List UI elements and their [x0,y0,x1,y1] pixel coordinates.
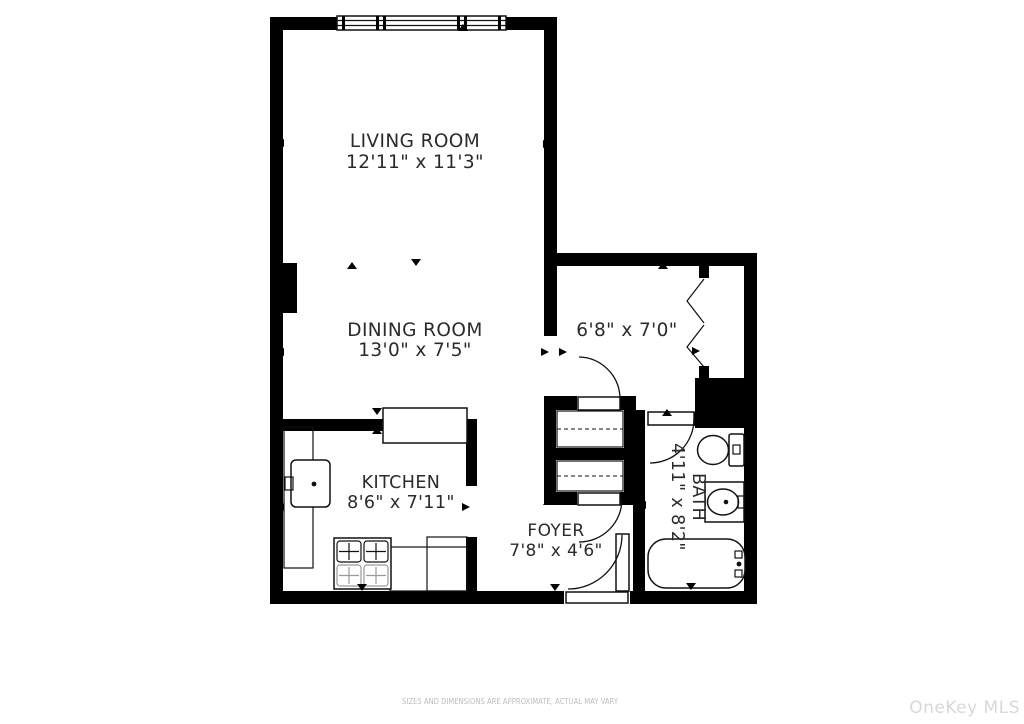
bifold-closet-door-icon [687,279,704,367]
dining-room-dimensions: 13'0" x 7'5" [358,340,472,361]
dimension-marker [692,347,700,355]
foyer-label: FOYER [527,521,584,541]
wall [699,366,709,380]
dining-room-label: DINING ROOM [347,320,482,341]
bath-dimensions: 4'11" x 8'2" [667,443,687,551]
dimension-marker [541,348,549,356]
wall [556,396,577,410]
toilet-icon [698,434,745,466]
dimension-marker [411,259,421,266]
dimension-marker [462,503,470,511]
wall [466,537,477,591]
window-icon [337,16,506,30]
wall [620,396,636,410]
wall [545,253,757,266]
wall [544,396,556,505]
wall [744,253,757,604]
kitchen-dimensions: 8'6" x 7'11" [347,493,455,513]
watermark: OneKey MLS [909,698,1020,718]
wall [544,17,557,336]
dimension-marker [559,348,567,356]
wall [283,263,297,313]
wall [270,17,283,604]
room-labels: LIVING ROOM 12'11" x 11'3" DINING ROOM 1… [346,131,708,561]
wall [283,419,383,431]
bath-label: BATH [688,473,708,521]
wall [633,410,645,591]
wall [699,266,709,278]
floor-plan: LIVING ROOM 12'11" x 11'3" DINING ROOM 1… [0,0,1024,724]
dimension-marker [347,262,357,269]
living-room-label: LIVING ROOM [350,131,480,152]
hallway-dimensions: 6'8" x 7'0" [576,320,677,341]
kitchen-label: KITCHEN [362,473,441,493]
wall [270,591,757,604]
disclaimer-text: SIZES AND DIMENSIONS ARE APPROXIMATE, AC… [402,697,618,706]
kitchen-sink-icon [285,460,330,507]
dimension-marker [550,584,560,591]
foyer-dimensions: 7'8" x 4'6" [509,541,603,561]
living-room-dimensions: 12'11" x 11'3" [346,152,484,173]
gas-range-icon [334,538,391,589]
bathtub-icon [648,539,745,588]
wall [695,378,757,428]
peninsula-counter-icon [383,408,467,443]
closet-door-to-hallway-icon [578,357,620,410]
vanity-sink-icon [705,482,744,522]
dimension-marker [372,408,382,415]
floor-plan-page: LIVING ROOM 12'11" x 11'3" DINING ROOM 1… [0,0,1024,724]
wall [556,448,624,460]
